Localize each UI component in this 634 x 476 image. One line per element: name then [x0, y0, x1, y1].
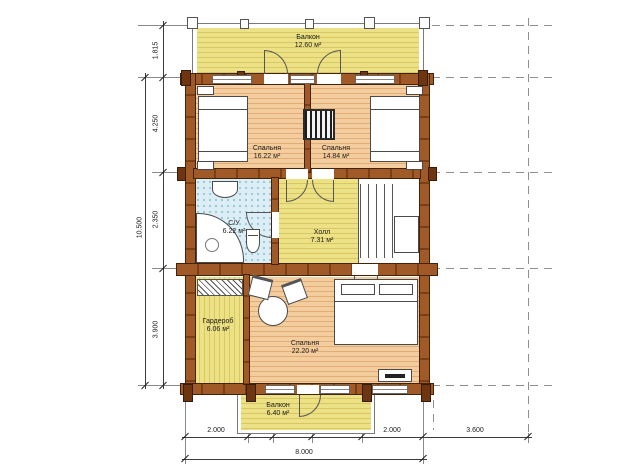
extension-line: [185, 400, 186, 464]
window: [372, 385, 408, 394]
pillow: [379, 284, 413, 295]
log-end: [362, 384, 372, 402]
log-end: [177, 167, 186, 181]
log-end: [183, 384, 193, 402]
door-opening: [264, 74, 288, 84]
hanger-rack: [197, 279, 243, 296]
grid-axis-horizontal: [432, 77, 556, 78]
bed: [370, 96, 420, 162]
room-name: Спальня: [296, 145, 376, 153]
dim-label: 3.600: [455, 426, 495, 435]
room-label-balcony-bottom: Балкон 6.40 м²: [238, 402, 318, 418]
nightstand: [197, 86, 214, 95]
door-opening: [272, 212, 279, 238]
log-end: [421, 384, 431, 402]
dim-label: 1.815: [152, 31, 161, 71]
room-label-bedroom-big: Спальня 22.20 м²: [265, 340, 345, 356]
window: [265, 385, 295, 394]
railing-post: [364, 17, 375, 29]
wall-mid-lower: [176, 263, 438, 276]
blanket-line: [335, 301, 417, 302]
dim-label: 3.900: [152, 310, 161, 350]
room-name: Гардероб: [188, 318, 248, 326]
log-end: [428, 167, 437, 181]
room-area: 12.60 м²: [258, 42, 358, 50]
room-label-bedroom-left: Спальня 16.22 м²: [227, 145, 307, 161]
dresser: [378, 369, 412, 382]
room-area: 22.20 м²: [265, 348, 345, 356]
room-area: 6.22 м²: [210, 228, 258, 236]
room-name: Спальня: [265, 340, 345, 348]
double-bed: [334, 279, 418, 345]
window: [212, 75, 252, 84]
dim-label: 4.250: [152, 104, 161, 144]
railing-post: [419, 17, 430, 29]
extension-line: [423, 400, 424, 464]
railing-post: [187, 17, 198, 29]
dresser-handle: [385, 374, 405, 378]
wall-right: [419, 73, 430, 395]
pillow: [341, 284, 375, 295]
nightstand: [197, 161, 214, 170]
dim-label: 2.350: [152, 200, 161, 240]
dim-label-total: 8.000: [284, 448, 324, 457]
chimney: [303, 109, 335, 140]
log-end: [246, 384, 256, 402]
pillow-line: [371, 109, 419, 110]
dimension-line-bottom-total: [182, 459, 427, 460]
window: [320, 385, 350, 394]
extension-line: [138, 25, 193, 26]
room-label-bathroom: С/У 6.22 м²: [210, 220, 258, 236]
room-area: 6.06 м²: [188, 326, 248, 334]
window: [355, 75, 395, 84]
pillow-line: [199, 109, 247, 110]
room-label-wardrobe: Гардероб 6.06 м²: [188, 318, 248, 334]
dimension-line-left-total: [145, 73, 146, 389]
grid-axis-vertical: [528, 18, 529, 432]
stairs-treads: [360, 184, 394, 258]
stairs-landing: [394, 216, 419, 253]
door-opening: [317, 74, 341, 84]
door-opening: [352, 264, 378, 275]
room-area: 6.40 м²: [238, 410, 318, 418]
dim-label: 2.000: [372, 426, 412, 435]
round-table: [258, 296, 288, 326]
dim-label: 2.000: [196, 426, 236, 435]
grid-axis-horizontal: [432, 172, 556, 173]
railing-post: [240, 19, 249, 29]
nightstand: [406, 86, 423, 95]
window: [290, 75, 315, 84]
floor-plan-canvas: 1.815 4.250 2.350 3.900 10.500 2.000 975…: [0, 0, 634, 476]
room-name: С/У: [210, 220, 258, 228]
room-area: 7.31 м²: [282, 237, 362, 245]
railing-post: [305, 19, 314, 29]
sink: [212, 181, 238, 198]
bathtub-drain: [205, 238, 219, 252]
room-name: Балкон: [238, 402, 318, 410]
log-end: [418, 70, 428, 86]
room-label-bedroom-right: Спальня 14.84 м²: [296, 145, 376, 161]
nightstand: [406, 161, 423, 170]
dim-label-total: 10.500: [136, 208, 145, 248]
grid-axis-horizontal: [432, 25, 556, 26]
room-area: 16.22 м²: [227, 153, 307, 161]
log-end: [181, 70, 191, 86]
room-area: 14.84 м²: [296, 153, 376, 161]
bed-line: [371, 151, 419, 152]
dimension-line-bottom: [182, 437, 532, 438]
grid-axis-horizontal: [432, 385, 556, 386]
grid-axis-vertical-short: [433, 400, 434, 430]
door-opening: [312, 169, 334, 179]
door-opening: [297, 385, 319, 394]
room-name: Спальня: [227, 145, 307, 153]
room-name: Холл: [282, 229, 362, 237]
room-label-balcony-top: Балкон 12.60 м²: [258, 34, 358, 50]
grid-axis-horizontal: [432, 268, 556, 269]
door-opening: [286, 169, 308, 179]
wall-left: [185, 73, 196, 395]
room-label-hall: Холл 7.31 м²: [282, 229, 362, 245]
room-name: Балкон: [258, 34, 358, 42]
